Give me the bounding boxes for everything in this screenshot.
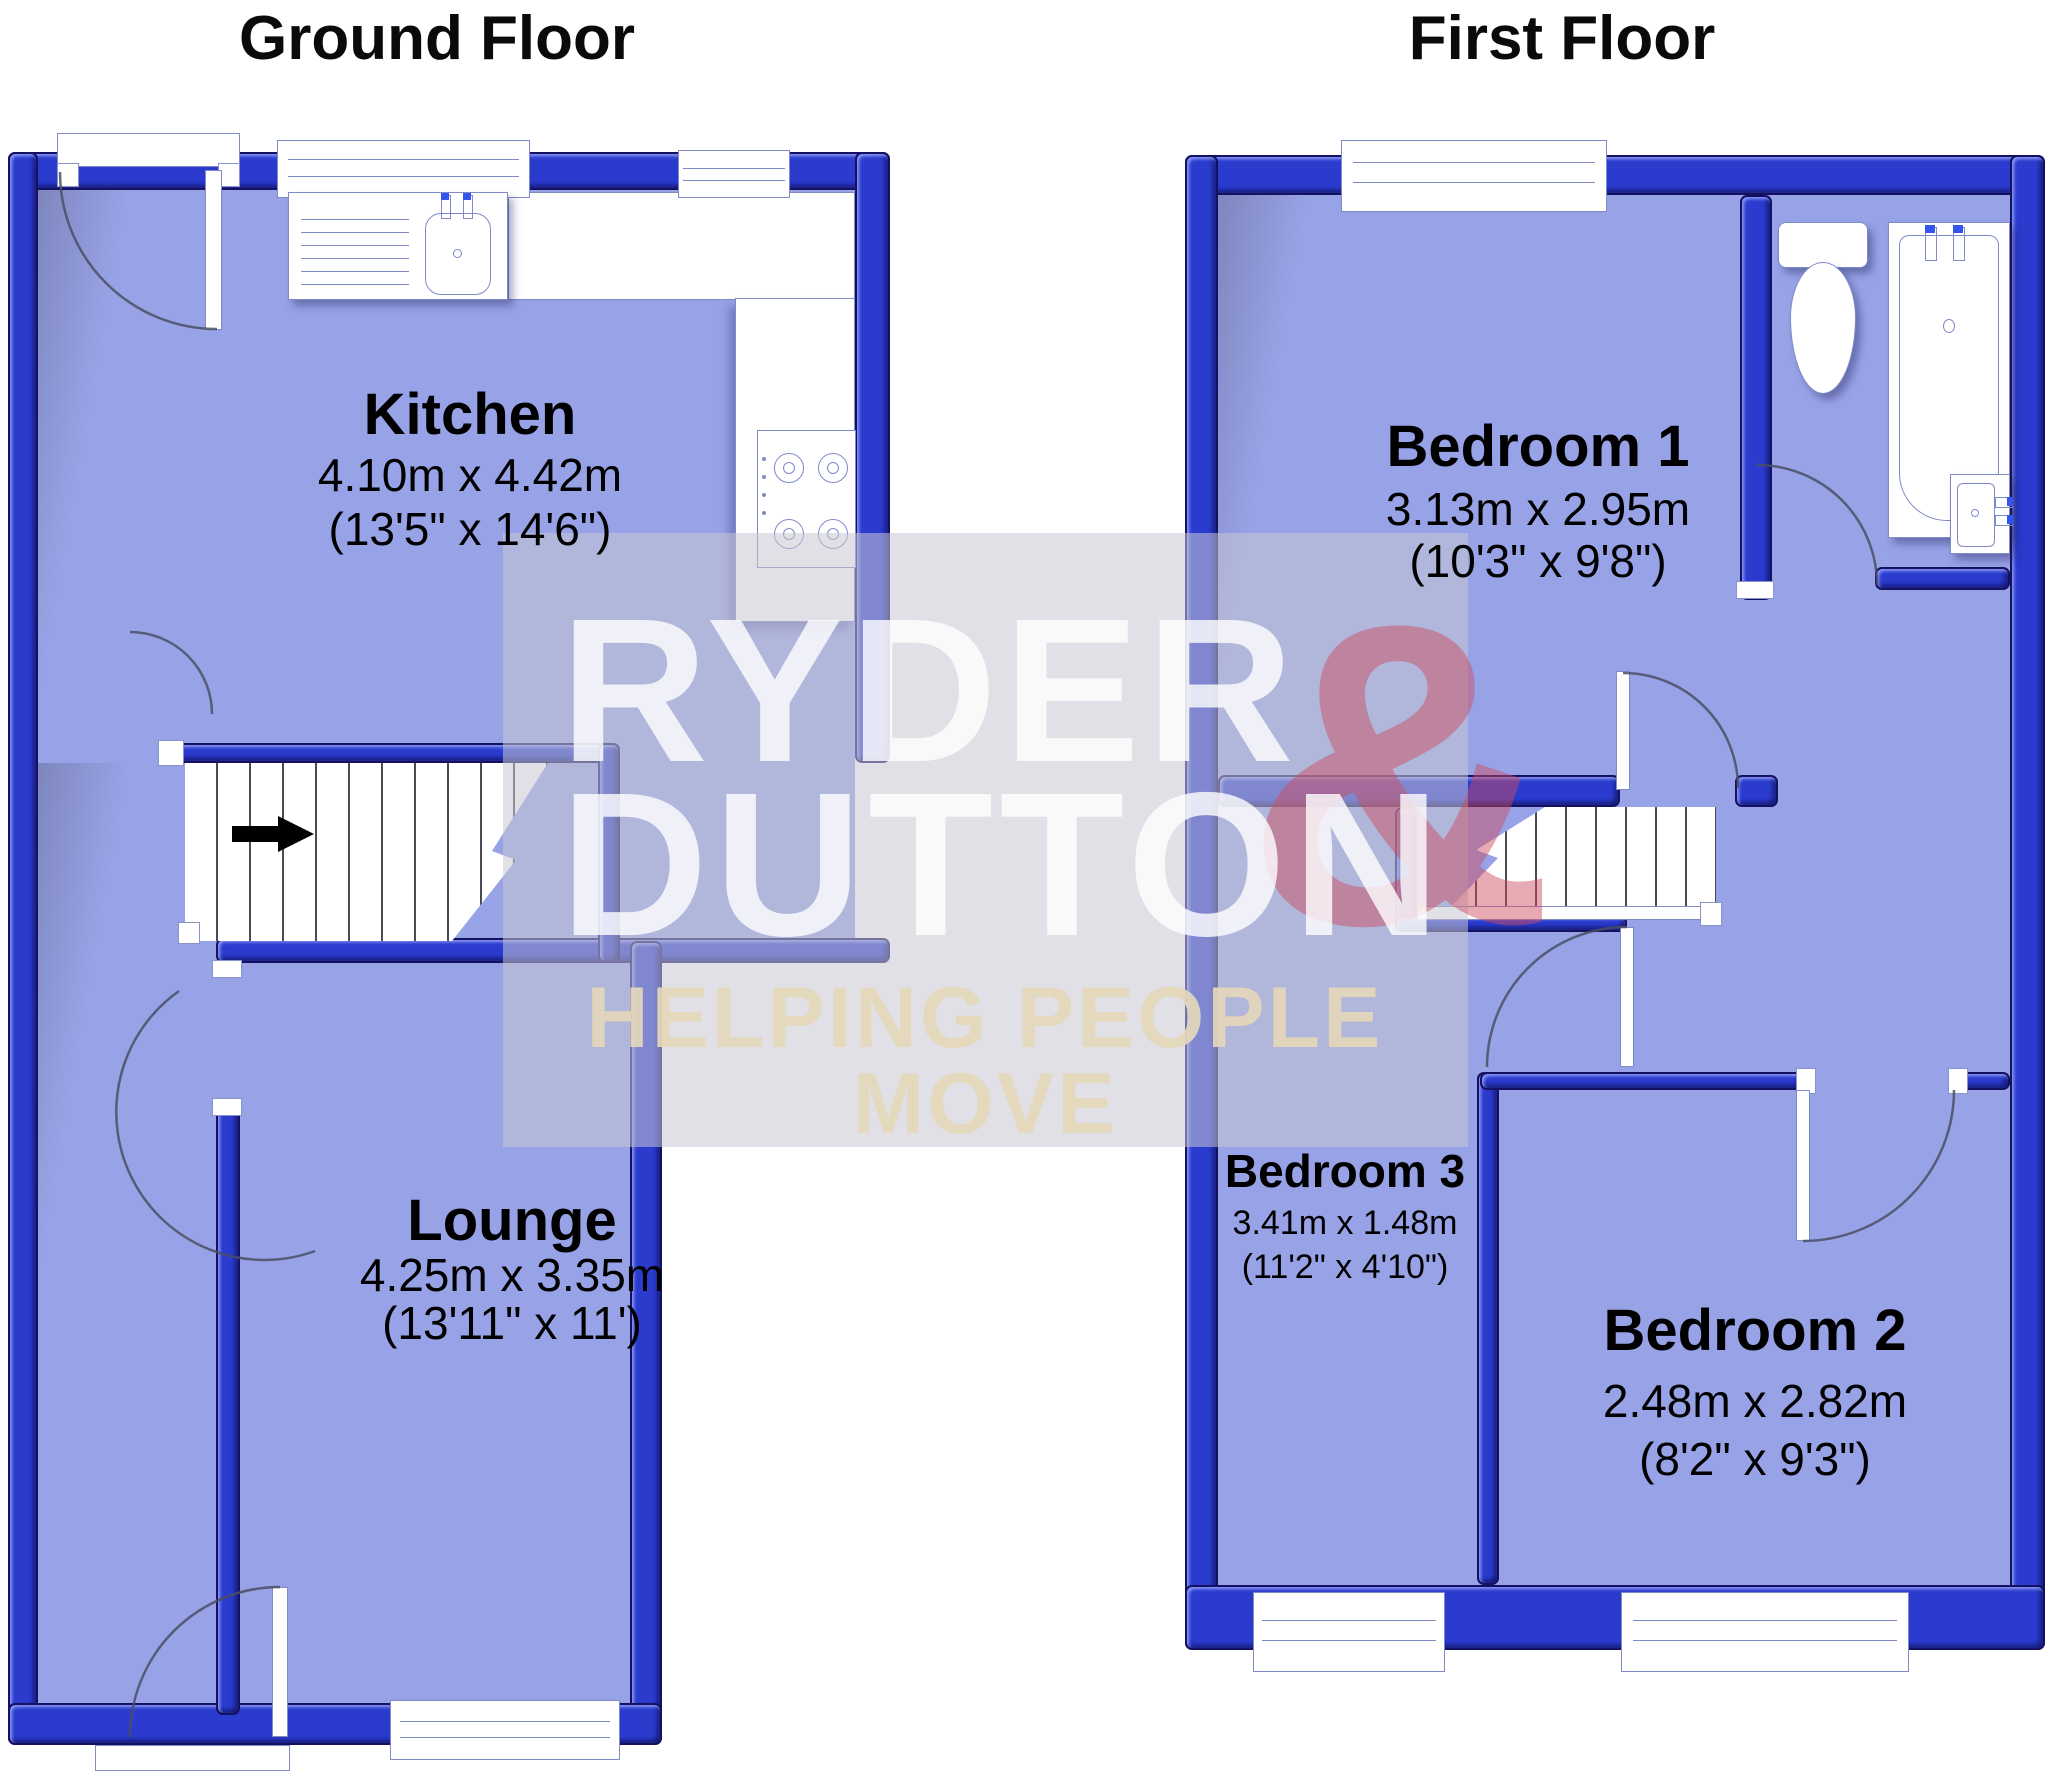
ground-floor-title: Ground Floor <box>137 8 737 70</box>
bedroom3-dim-metric: 3.41m x 1.48m <box>1195 1206 1495 1240</box>
lounge-label: Lounge <box>312 1192 712 1250</box>
bedroom2-dim-imperial: (8'2" x 9'3") <box>1555 1436 1955 1482</box>
bedroom2-label: Bedroom 2 <box>1555 1302 1955 1360</box>
watermark-tagline: HELPING PEOPLE MOVE <box>510 975 1460 1147</box>
stairs-direction-arrow <box>232 816 314 852</box>
lounge-dim-metric: 4.25m x 3.35m <box>312 1252 712 1298</box>
bedroom1-dim-imperial: (10'3" x 9'8") <box>1338 538 1738 584</box>
front-door-arc <box>60 172 217 329</box>
bedroom3-label: Bedroom 3 <box>1195 1148 1495 1194</box>
bed2-door-arc <box>1803 1090 1954 1241</box>
bath-door-arc <box>1757 465 1877 585</box>
kitchen-dim-imperial: (13'5" x 14'6") <box>270 506 670 552</box>
bedroom1-dim-metric: 3.13m x 2.95m <box>1338 486 1738 532</box>
hall-door-arc <box>130 632 212 714</box>
kitchen-dim-metric: 4.10m x 4.42m <box>270 452 670 498</box>
lounge-dim-imperial: (13'11" x 11') <box>312 1300 712 1346</box>
first-floor-title: First Floor <box>1262 8 1862 70</box>
back-door-arc <box>130 1587 280 1737</box>
watermark-dutton: DUTTON <box>560 762 1446 967</box>
lounge-door-arc <box>116 991 315 1260</box>
bedroom2-dim-metric: 2.48m x 2.82m <box>1555 1378 1955 1424</box>
bed1-door-arc <box>1623 673 1738 788</box>
floorplan-canvas: RYDER & DUTTON HELPING PEOPLE MOVE Groun… <box>0 0 2048 1772</box>
bedroom1-label: Bedroom 1 <box>1338 418 1738 476</box>
kitchen-label: Kitchen <box>270 386 670 444</box>
bedroom3-dim-imperial: (11'2" x 4'10") <box>1195 1250 1495 1284</box>
